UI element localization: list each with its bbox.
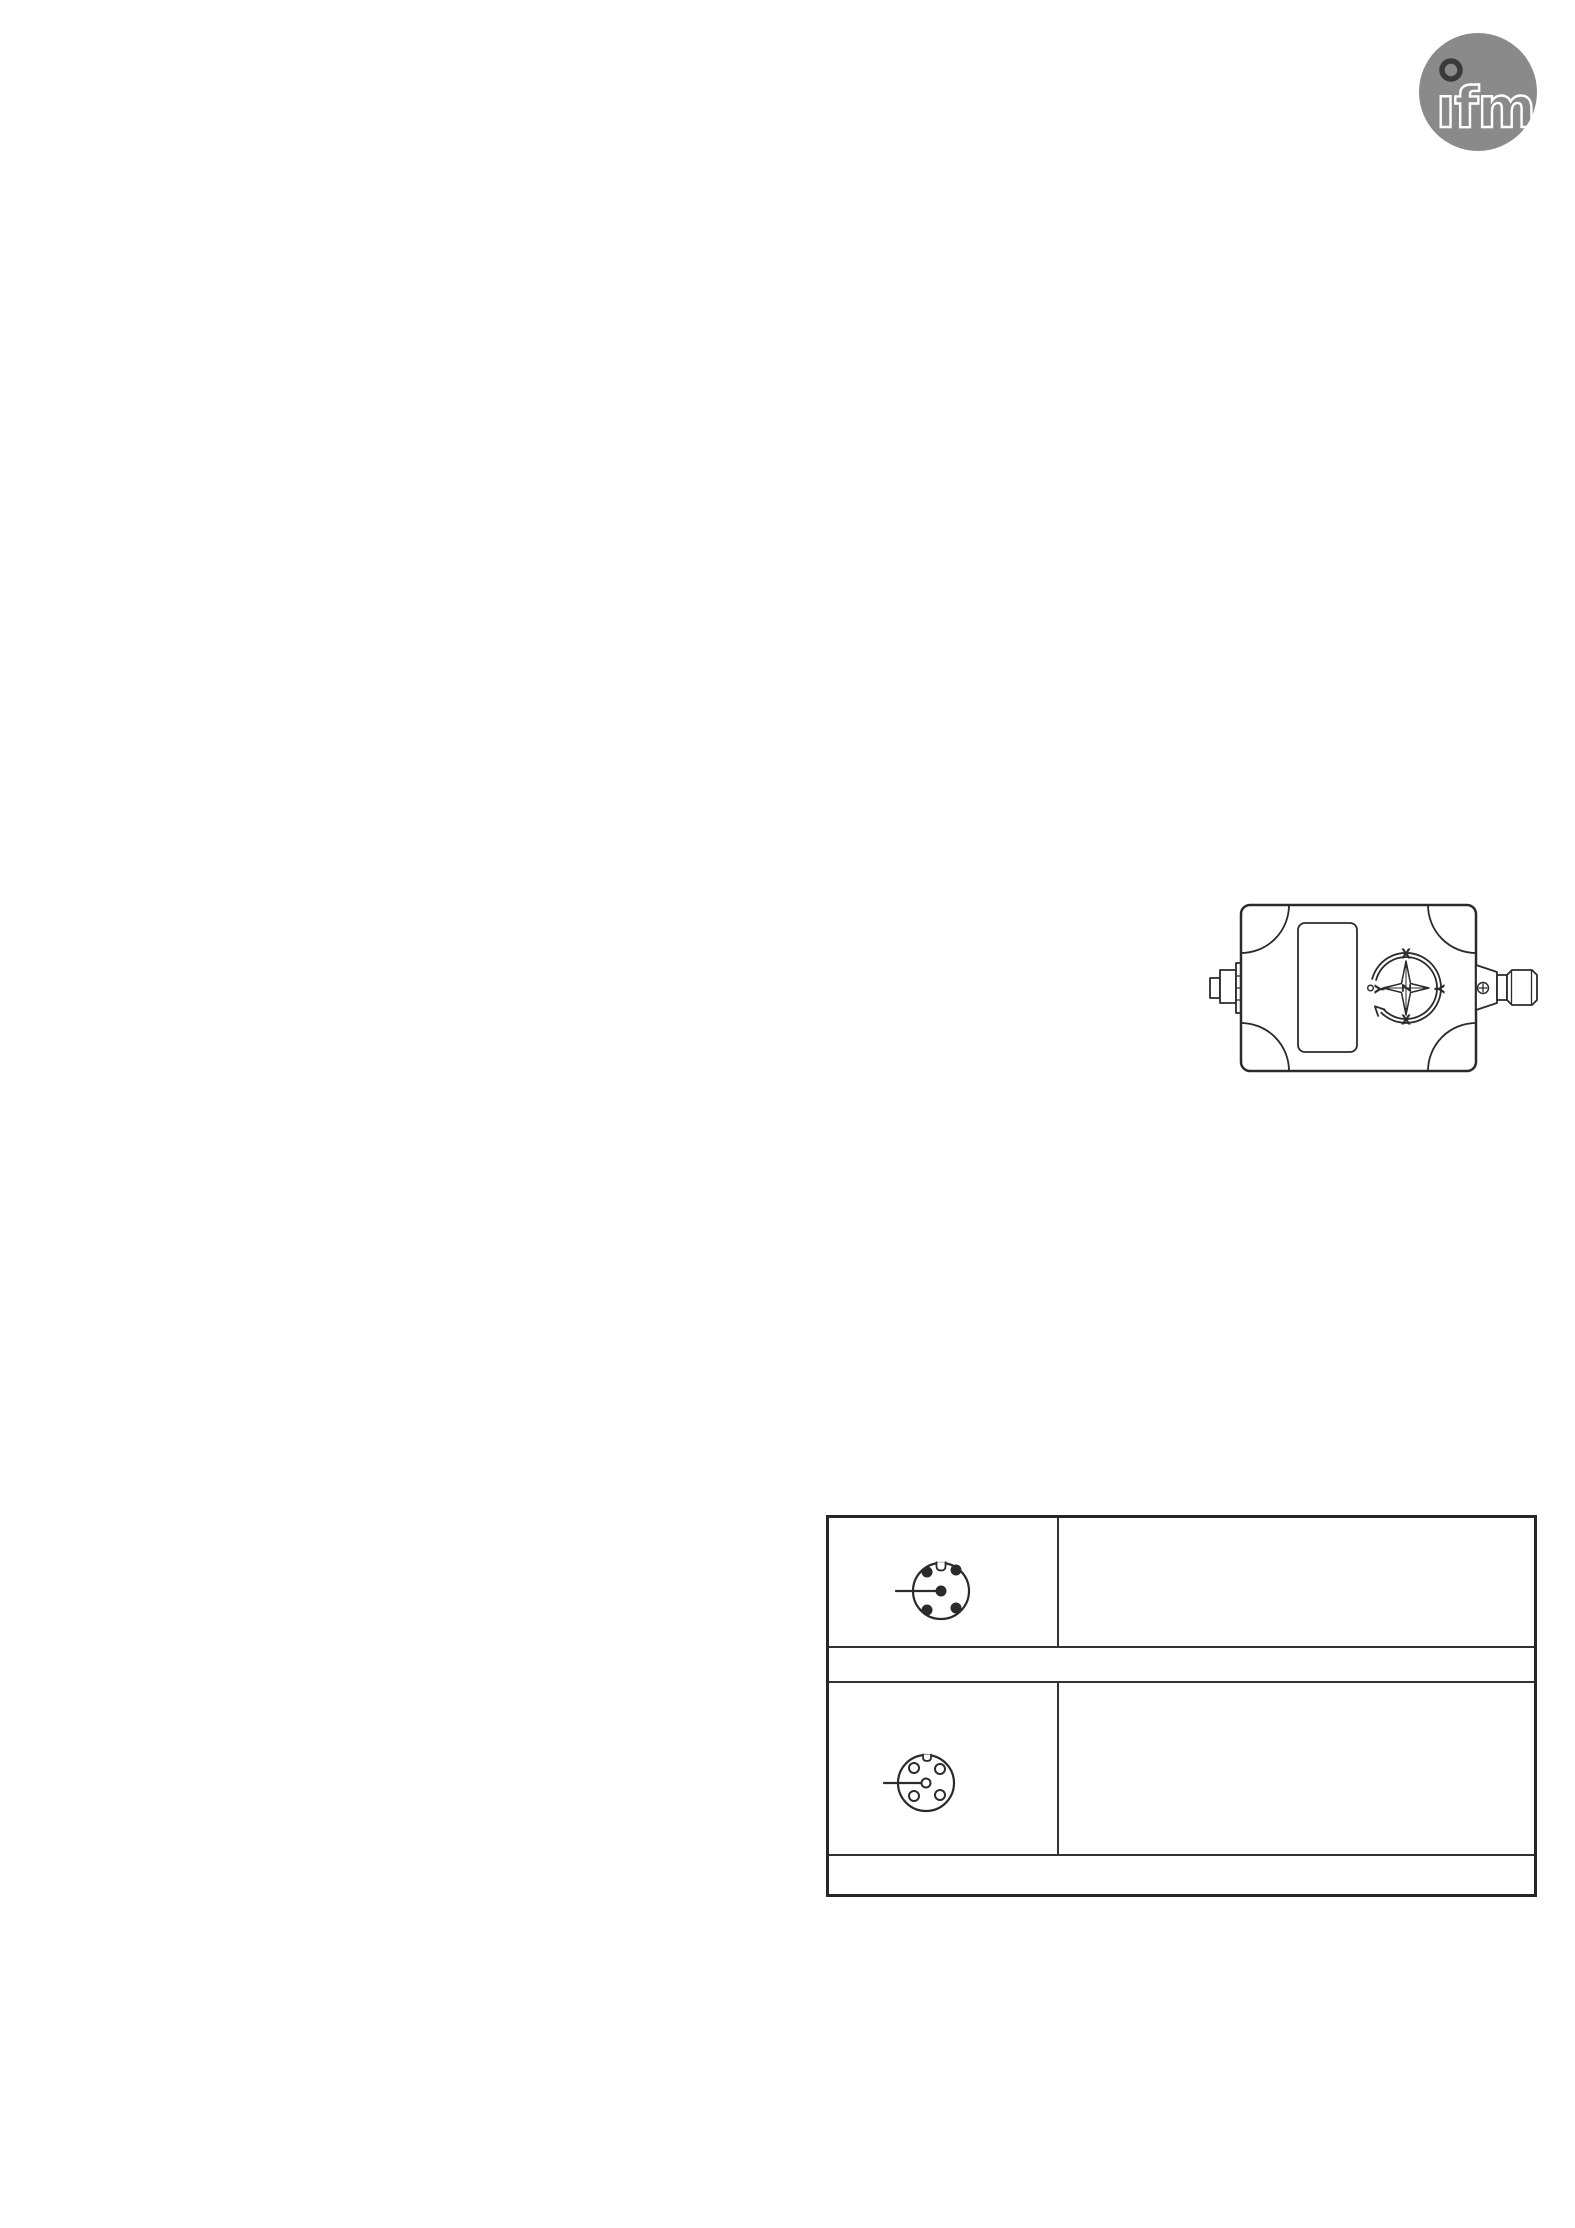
m12-male-connector-icon bbox=[891, 1556, 981, 1626]
screw-icon bbox=[1478, 983, 1489, 994]
note-row-2 bbox=[829, 1856, 1534, 1894]
left-connector bbox=[1210, 963, 1241, 1013]
m12-female-connector-icon bbox=[876, 1748, 966, 1818]
ifm-logo: ıfm bbox=[1418, 32, 1538, 152]
axis-label-y-right: Y bbox=[1431, 983, 1446, 994]
keyway-notch bbox=[923, 1755, 931, 1762]
axis-label-z-center: Z bbox=[1399, 984, 1413, 993]
axis-label-x-bottom: X bbox=[1401, 1014, 1411, 1029]
keyway-notch bbox=[937, 1562, 946, 1570]
device-drawing: X X Y Y Z bbox=[1200, 895, 1545, 1085]
axis-label-y-left: Y bbox=[1374, 984, 1389, 995]
logo-letters: ıfm bbox=[1436, 76, 1535, 141]
label-plate bbox=[1298, 923, 1357, 1052]
right-connector bbox=[1476, 965, 1537, 1010]
note-row-1 bbox=[829, 1648, 1534, 1683]
description-cell-female bbox=[1059, 1683, 1534, 1856]
axis-label-x-top: X bbox=[1401, 948, 1411, 963]
description-cell-male bbox=[1059, 1518, 1534, 1648]
connection-table bbox=[826, 1515, 1537, 1897]
datasheet-page: { "page": { "kind": "datasheet-page", "b… bbox=[0, 0, 1575, 2228]
